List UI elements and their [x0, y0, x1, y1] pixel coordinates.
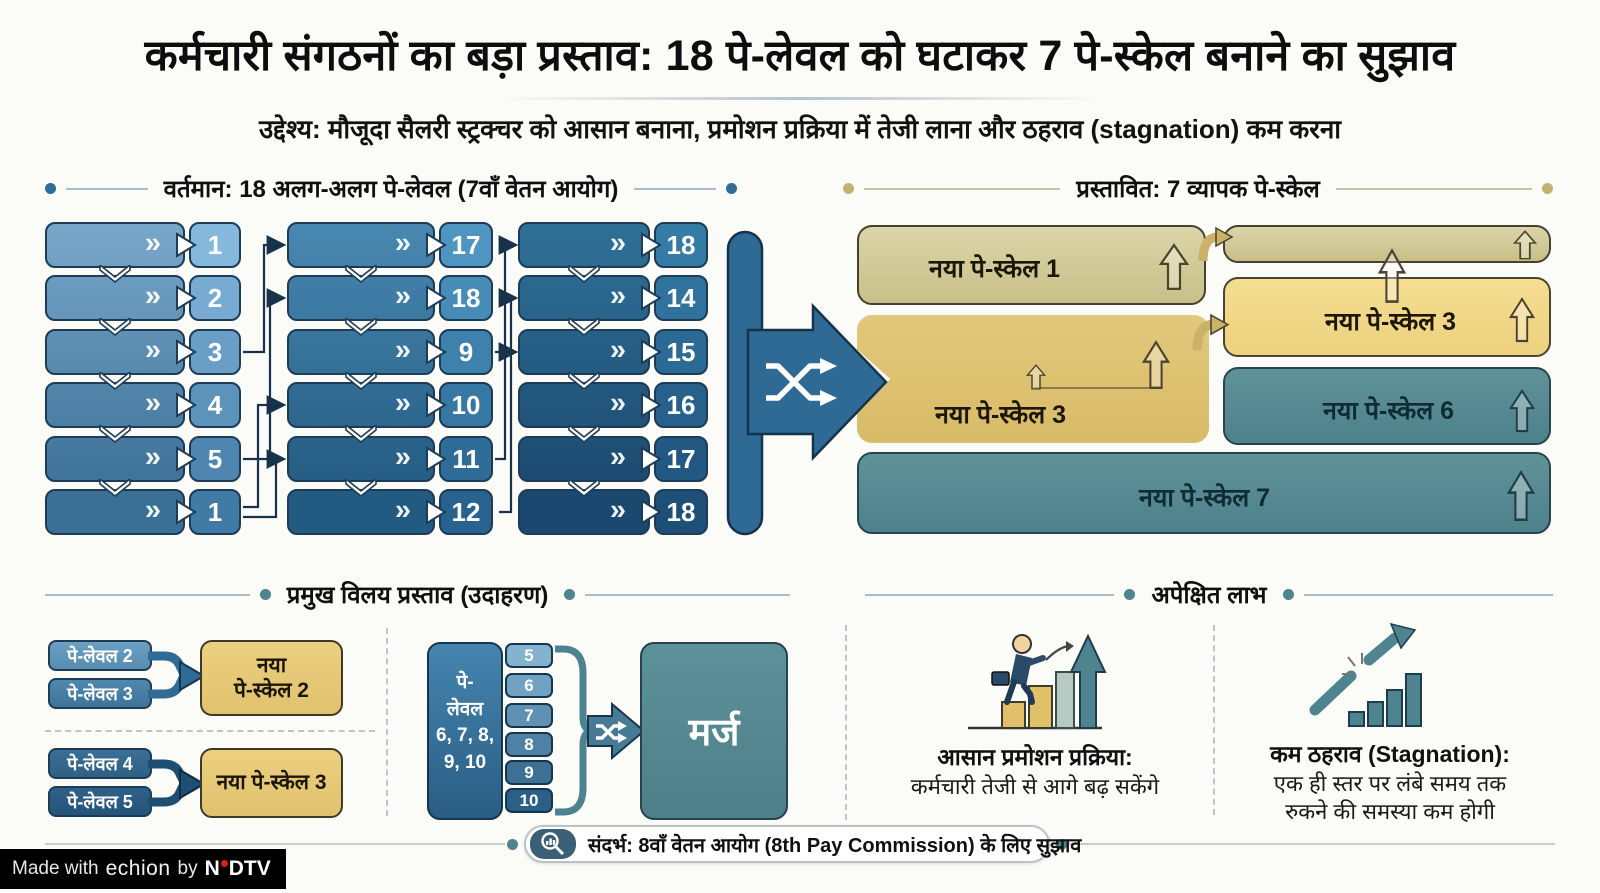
header-dot-icon: [260, 589, 271, 600]
benefit-1-title: आसान प्रमोशन प्रक्रिया:: [870, 740, 1200, 772]
pay-level-bar: »: [518, 222, 650, 268]
examples-vertical-divider: [386, 628, 388, 816]
merge-funnel-arrow: [700, 200, 900, 560]
new-pay-scale-3-left-label: नया पे-स्केल 3: [935, 397, 1066, 431]
hook-arrow-icon: [1198, 227, 1234, 263]
connector-arrow-icon: [640, 392, 662, 418]
chevron-right-icon: »: [610, 494, 624, 527]
echion-logo: echion: [106, 857, 171, 881]
up-arrow-icon: [1378, 248, 1406, 304]
chevron-right-icon: »: [145, 387, 159, 420]
chevron-right-icon: »: [395, 227, 409, 260]
pay-level-bar: »: [287, 222, 435, 268]
chevron-right-icon: »: [395, 334, 409, 367]
connector-arrow-icon: [425, 499, 447, 525]
benefits-header: अपेक्षित लाभ: [865, 578, 1553, 611]
merge-examples-header: प्रमुख विलय प्रस्ताव (उदाहरण): [45, 578, 790, 611]
down-arrow-icon: [566, 265, 602, 283]
up-arrow-icon: [1509, 297, 1535, 343]
chevron-right-icon: »: [610, 441, 624, 474]
source-line: 6, 7, 8,: [429, 723, 501, 750]
connector-arrow-icon: [175, 339, 197, 365]
footer-line: [1068, 843, 1555, 845]
benefit-2-title: कम ठहराव (Stagnation):: [1225, 737, 1555, 769]
connector-arrow-icon: [175, 446, 197, 472]
hook-arrow-icon: [1192, 313, 1230, 351]
chevron-right-icon: »: [395, 441, 409, 474]
ndtv-red-dot-icon: [221, 860, 228, 867]
down-arrow-icon: [566, 479, 602, 497]
section-vertical-divider: [845, 625, 847, 820]
pay-level-badge: 9: [439, 329, 493, 375]
chevron-right-icon: »: [610, 387, 624, 420]
up-arrow-icon: [1513, 230, 1537, 260]
header-dot-icon: [843, 183, 854, 194]
connector-arrow-icon: [425, 392, 447, 418]
header-dot-icon: [1542, 183, 1553, 194]
chevron-right-icon: »: [395, 280, 409, 313]
connector-arrow-icon: [425, 285, 447, 311]
merge-bracket-arrow: [148, 642, 206, 714]
connector-arrow-icon: [175, 232, 197, 258]
reference-text: संदर्भ: 8वाँ वेतन आयोग (8th Pay Commissi…: [588, 831, 1081, 858]
source-line: 9, 10: [429, 750, 501, 777]
up-arrow-icon: [1142, 340, 1170, 390]
down-arrow-icon: [343, 318, 379, 336]
chevron-right-icon: »: [145, 227, 159, 260]
header-line: [1304, 594, 1553, 596]
level-tab: 6: [505, 673, 553, 698]
connector-arrow-icon: [640, 499, 662, 525]
level-tab: 7: [505, 703, 553, 728]
credit-prefix: Made with: [12, 858, 99, 880]
chevron-right-icon: »: [145, 280, 159, 313]
pay-level-badge: 10: [439, 382, 493, 428]
ndtv-logo: NDTV: [205, 857, 271, 881]
new-pay-scale-3-result-box: नया पे-स्केल 3: [200, 748, 343, 818]
down-arrow-icon: [97, 479, 133, 497]
level-tab: 9: [505, 760, 553, 785]
pay-level-badge: 18: [439, 275, 493, 321]
chevron-right-icon: »: [395, 494, 409, 527]
new-pay-scale-1-box: नया पे-स्केल 1: [857, 225, 1206, 305]
pay-level-5-chip: पे-लेवल 5: [48, 786, 152, 817]
down-arrow-icon: [97, 318, 133, 336]
connector-arrow-icon: [425, 446, 447, 472]
level-tab: 10: [505, 788, 553, 813]
down-arrow-icon: [97, 372, 133, 390]
down-arrow-icon: [566, 372, 602, 390]
down-arrow-icon: [566, 318, 602, 336]
header-line: [865, 594, 1114, 596]
benefit-2-desc-line2: रुकने की समस्या कम होगी: [1225, 796, 1555, 826]
header-line: [585, 594, 790, 596]
pay-level-bar: »: [45, 222, 185, 268]
level-tab: 8: [505, 732, 553, 757]
down-arrow-icon: [566, 425, 602, 443]
credit-by: by: [178, 858, 198, 880]
new-pay-scale-7-label: नया पे-स्केल 7: [1139, 480, 1270, 514]
footer-line: [45, 843, 505, 845]
merge-examples-title: प्रमुख विलय प्रस्ताव (उदाहरण): [281, 578, 555, 611]
example-divider: [45, 730, 375, 732]
header-dot-icon: [1124, 589, 1135, 600]
benefits-vertical-divider: [1213, 625, 1215, 815]
header-line: [864, 188, 1060, 190]
footer-dot-icon: [507, 839, 518, 850]
benefits-title: अपेक्षित लाभ: [1145, 578, 1272, 611]
merge-result-box: मर्ज: [640, 642, 788, 820]
connector-arrow-icon: [425, 339, 447, 365]
benefit-2-desc-line1: एक ही स्तर पर लंबे समय तक: [1225, 768, 1555, 798]
connector-arrow-icon: [640, 285, 662, 311]
connector-arrow-icon: [175, 499, 197, 525]
pay-level-badge: 17: [439, 222, 493, 268]
merge-bracket-arrow: [148, 750, 206, 822]
down-arrow-icon: [343, 479, 379, 497]
pay-level-4-chip: पे-लेवल 4: [48, 748, 152, 779]
stagnation-break-icon: [1305, 622, 1437, 730]
pay-level-badge: 12: [439, 489, 493, 535]
pay-level-3-chip: पे-लेवल 3: [48, 678, 152, 709]
new-pay-scale-1-label: नया पे-स्केल 1: [929, 251, 1060, 285]
connector-arrow-icon: [175, 285, 197, 311]
magnifier-chart-icon: [530, 829, 576, 859]
new-pay-scale-6-box: नया पे-स्केल 6: [1223, 367, 1551, 445]
shuffle-arrow-icon: [586, 700, 648, 762]
header-line: [45, 594, 250, 596]
header-dot-icon: [564, 589, 575, 600]
connector-arrow-icon: [425, 232, 447, 258]
chevron-right-icon: »: [610, 227, 624, 260]
chevron-right-icon: »: [145, 494, 159, 527]
result-line2: पे-स्केल 2: [234, 678, 309, 703]
chevron-right-icon: »: [610, 334, 624, 367]
down-arrow-icon: [97, 425, 133, 443]
infographic-canvas: कर्मचारी संगठनों का बड़ा प्रस्ताव: 18 पे…: [0, 0, 1600, 893]
source-line: लेवल: [429, 697, 501, 724]
new-pay-scale-3-right-label: नया पे-स्केल 3: [1325, 304, 1456, 338]
pay-levels-6-10-box: पे- लेवल 6, 7, 8, 9, 10: [427, 642, 503, 820]
up-arrow-icon: [1509, 389, 1535, 433]
result-line1: नया: [257, 653, 286, 678]
connector-arrow-icon: [175, 392, 197, 418]
chevron-right-icon: »: [145, 441, 159, 474]
promotion-climb-icon: [950, 618, 1120, 736]
proposed-section-header: प्रस्तावित: 7 व्यापक पे-स्केल: [843, 172, 1553, 205]
source-line: पे-: [429, 670, 501, 697]
new-pay-scale-2-result-box: नया पे-स्केल 2: [200, 640, 343, 716]
down-arrow-icon: [343, 425, 379, 443]
header-line: [1336, 188, 1532, 190]
chevron-right-icon: »: [610, 280, 624, 313]
reference-pill: संदर्भ: 8वाँ वेतन आयोग (8th Pay Commissi…: [524, 825, 1050, 863]
connector-arrow-icon: [640, 446, 662, 472]
down-arrow-icon: [343, 372, 379, 390]
proposed-section-title: प्रस्तावित: 7 व्यापक पे-स्केल: [1070, 172, 1326, 205]
up-arrow-icon: [1159, 243, 1189, 291]
up-arrow-icon: [1026, 364, 1046, 390]
connector-arrow-icon: [640, 339, 662, 365]
chevron-right-icon: »: [145, 334, 159, 367]
benefit-1-desc: कर्मचारी तेजी से आगे बढ़ सकेंगे: [870, 771, 1200, 801]
new-pay-scale-7-box: नया पे-स्केल 7: [857, 452, 1551, 534]
chevron-right-icon: »: [395, 387, 409, 420]
new-pay-scale-6-label: नया पे-स्केल 6: [1323, 393, 1454, 427]
level-tab: 5: [505, 643, 553, 668]
header-dot-icon: [1283, 589, 1294, 600]
pay-level-2-chip: पे-लेवल 2: [48, 640, 152, 671]
up-arrow-icon: [1507, 470, 1535, 522]
result-line: नया पे-स्केल 3: [216, 770, 326, 795]
down-arrow-icon: [343, 265, 379, 283]
connector-arrow-icon: [640, 232, 662, 258]
pay-level-badge: 11: [439, 436, 493, 482]
credit-bar: Made with echion by NDTV: [0, 849, 286, 889]
down-arrow-icon: [97, 265, 133, 283]
